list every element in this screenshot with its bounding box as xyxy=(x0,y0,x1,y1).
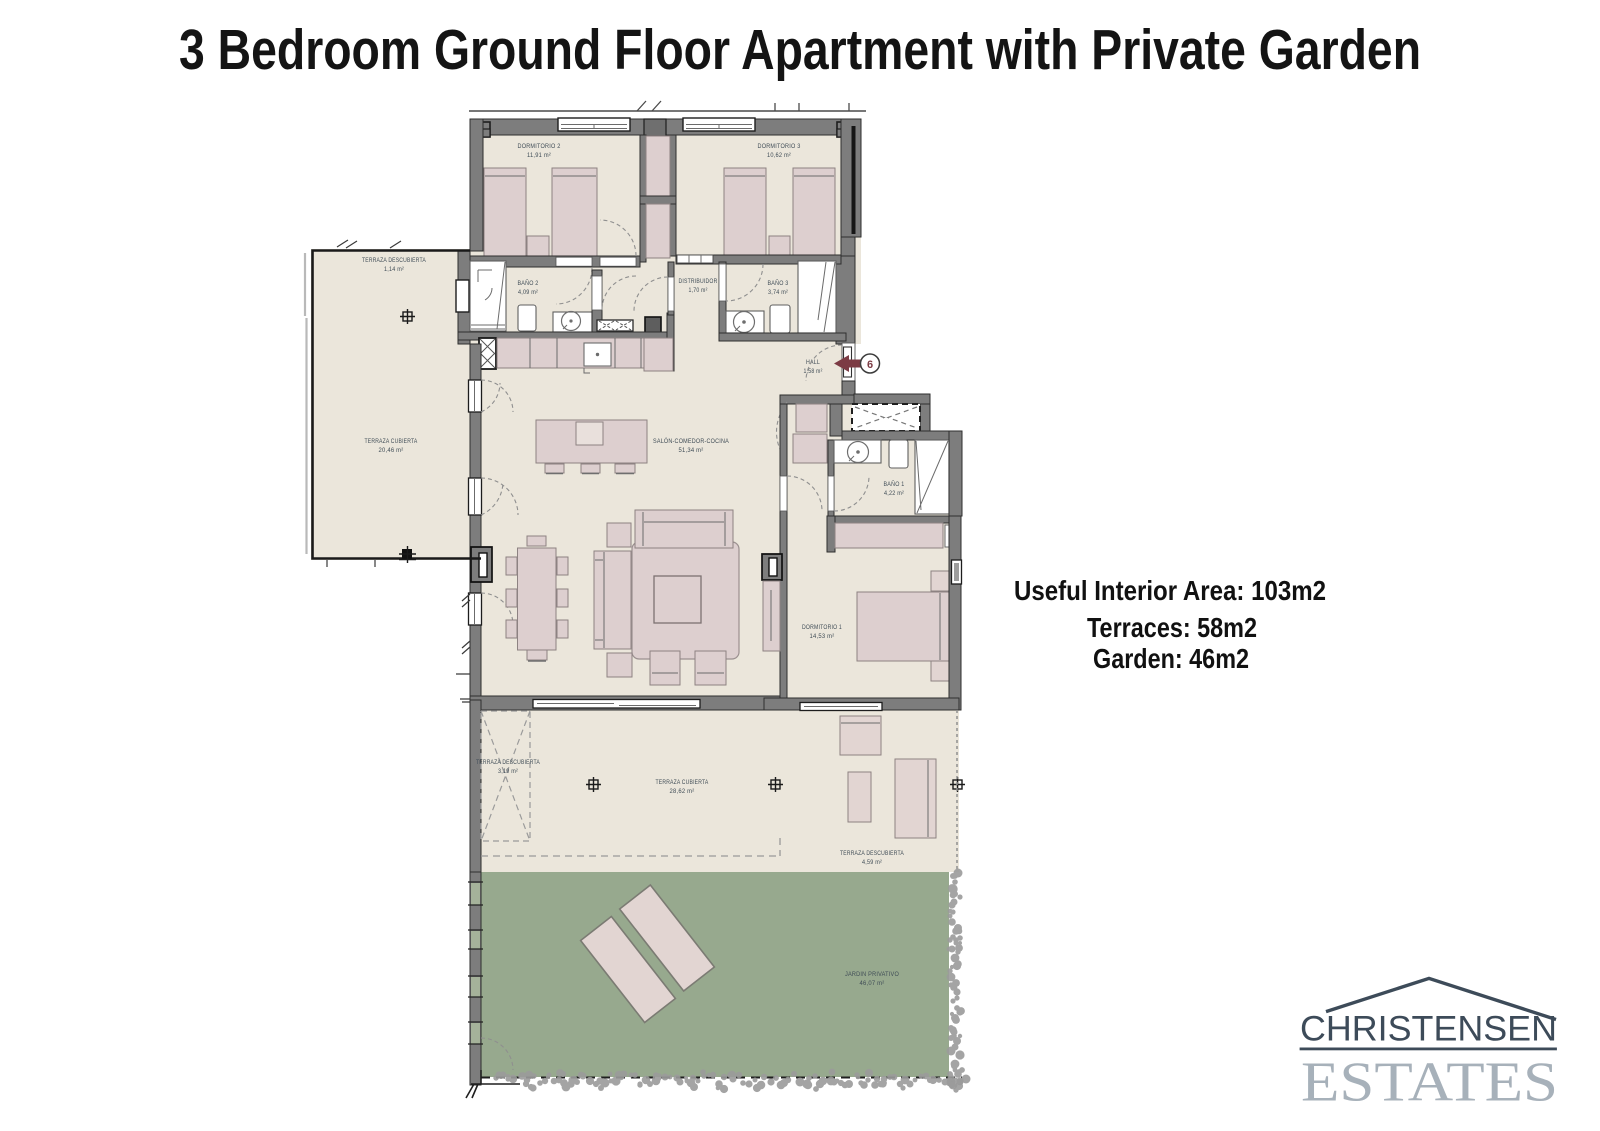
svg-text:BAÑO 3: BAÑO 3 xyxy=(768,278,789,287)
svg-text:Useful Interior Area: 103m2: Useful Interior Area: 103m2 xyxy=(1014,575,1326,606)
svg-text:4,09 m²: 4,09 m² xyxy=(518,289,538,296)
svg-text:DORMITORIO 2: DORMITORIO 2 xyxy=(518,143,561,150)
svg-text:3 Bedroom Ground Floor Apartme: 3 Bedroom Ground Floor Apartment with Pr… xyxy=(179,18,1421,82)
svg-text:DISTRIBUIDOR: DISTRIBUIDOR xyxy=(679,278,718,285)
svg-text:51,34 m²: 51,34 m² xyxy=(679,447,704,454)
svg-text:DORMITORIO 3: DORMITORIO 3 xyxy=(758,143,801,150)
svg-text:4,22 m²: 4,22 m² xyxy=(884,490,904,497)
svg-text:TERRAZA DESCUBIERTA: TERRAZA DESCUBIERTA xyxy=(362,257,426,264)
svg-text:1,70 m²: 1,70 m² xyxy=(689,287,708,294)
svg-text:HALL: HALL xyxy=(806,359,820,366)
svg-text:TERRAZA CUBIERTA: TERRAZA CUBIERTA xyxy=(656,779,709,786)
svg-text:28,62 m²: 28,62 m² xyxy=(670,788,695,795)
svg-text:14,53 m²: 14,53 m² xyxy=(810,633,835,640)
svg-text:10,62 m²: 10,62 m² xyxy=(767,152,791,159)
svg-text:TERRAZA CUBIERTA: TERRAZA CUBIERTA xyxy=(365,438,418,445)
svg-text:CHRISTENSEN: CHRISTENSEN xyxy=(1300,1010,1557,1049)
svg-text:SALÓN-COMEDOR-COCINA: SALÓN-COMEDOR-COCINA xyxy=(653,436,729,445)
svg-text:ESTATES: ESTATES xyxy=(1301,1052,1558,1114)
svg-text:BAÑO 2: BAÑO 2 xyxy=(518,278,539,287)
svg-text:BAÑO 1: BAÑO 1 xyxy=(884,479,905,488)
svg-text:6: 6 xyxy=(867,359,873,371)
svg-text:3,74 m²: 3,74 m² xyxy=(768,289,788,296)
svg-text:1,14 m²: 1,14 m² xyxy=(384,266,404,273)
svg-text:DORMITORIO 1: DORMITORIO 1 xyxy=(802,624,842,631)
svg-text:JARDIN PRIVATIVO: JARDIN PRIVATIVO xyxy=(845,971,899,978)
svg-text:3,19 m²: 3,19 m² xyxy=(498,768,518,775)
svg-text:Terraces: 58m2: Terraces: 58m2 xyxy=(1087,612,1257,643)
svg-text:11,91 m²: 11,91 m² xyxy=(527,152,551,159)
svg-text:46,07 m²: 46,07 m² xyxy=(860,980,885,987)
svg-text:20,46 m²: 20,46 m² xyxy=(379,447,404,454)
svg-text:4,59 m²: 4,59 m² xyxy=(862,859,882,866)
svg-text:Garden: 46m2: Garden: 46m2 xyxy=(1093,643,1249,674)
svg-text:TERRAZA DESCUBIERTA: TERRAZA DESCUBIERTA xyxy=(476,759,540,766)
svg-text:TERRAZA DESCUBIERTA: TERRAZA DESCUBIERTA xyxy=(840,850,904,857)
